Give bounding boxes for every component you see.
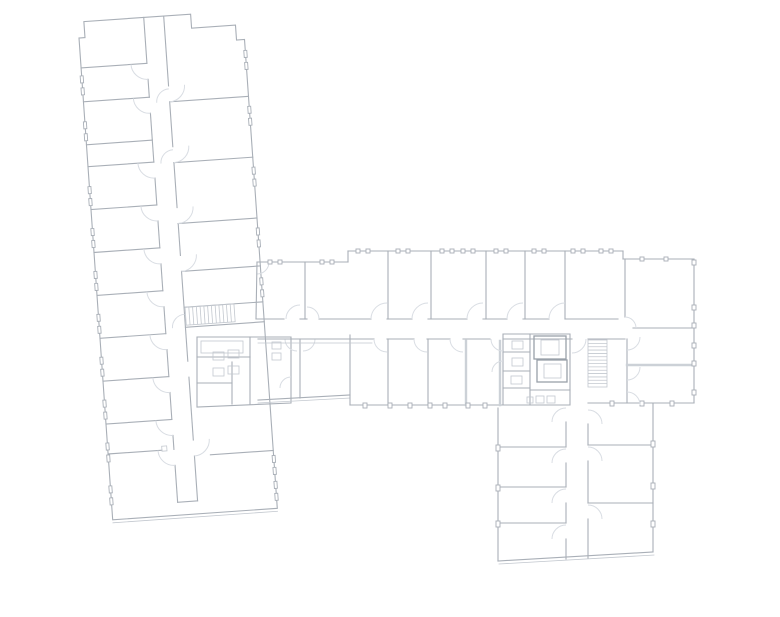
fixture [536, 396, 544, 403]
wall-wall-line [155, 178, 157, 205]
door-arc [627, 367, 640, 380]
window-mark [104, 412, 107, 419]
wall-wall-line [158, 221, 160, 248]
window-mark [330, 260, 334, 264]
wall-wall-line [210, 450, 273, 454]
door-arc [627, 337, 640, 350]
window-mark [692, 361, 696, 366]
window-mark [98, 326, 101, 333]
door-arc [169, 85, 186, 102]
window-mark [532, 249, 536, 253]
window-mark [609, 249, 613, 253]
door-arc [141, 205, 158, 222]
window-mark [496, 521, 500, 527]
wall-wall-line [170, 102, 173, 147]
window-mark [92, 240, 95, 247]
window-mark [110, 498, 113, 505]
stair-tread [211, 305, 212, 323]
wall-wall-line [194, 456, 197, 501]
window-mark [581, 249, 585, 253]
door-arc [572, 339, 586, 353]
wall-wall-line [81, 63, 147, 68]
fixture [272, 353, 281, 360]
window-mark [100, 357, 103, 364]
wall-wall-line [108, 450, 162, 454]
window-mark [483, 403, 487, 408]
wall-wall-line [189, 377, 193, 440]
wall-wall-line [88, 162, 154, 167]
junction-core [197, 262, 350, 407]
window-mark [272, 455, 275, 462]
window-mark [428, 403, 432, 408]
door-arc [492, 361, 503, 372]
window-mark [356, 249, 360, 253]
door-arc [177, 206, 194, 223]
stair-tread [208, 306, 209, 324]
window-mark [640, 257, 644, 261]
wall-wall-line [100, 334, 166, 339]
wall-wall-line [178, 224, 180, 256]
stair-tread [200, 306, 201, 324]
door-arc [172, 314, 186, 328]
wall-wall-line [94, 248, 160, 253]
left-wing [76, 10, 279, 522]
window-mark [268, 260, 272, 264]
door-arc [552, 489, 566, 503]
elevator-car [544, 364, 561, 378]
fixture [547, 396, 555, 403]
door-arc [147, 291, 164, 308]
window-mark [103, 400, 106, 407]
window-mark [106, 443, 109, 450]
door-arc [286, 305, 300, 319]
door-arc [158, 449, 175, 466]
window-mark [450, 249, 454, 253]
window-mark [443, 403, 447, 408]
wall-wall-line [144, 17, 147, 63]
door-arc [156, 89, 170, 103]
window-mark [278, 260, 282, 264]
stair-tread [230, 304, 231, 322]
window-mark [95, 283, 98, 290]
window-mark [109, 486, 112, 493]
door-arc [160, 150, 174, 164]
wall-wall-line [178, 218, 257, 224]
floor-plan-page [0, 0, 780, 617]
window-mark [599, 249, 603, 253]
wall-wall-line [174, 163, 177, 208]
stair-tread [226, 304, 227, 322]
window-mark [692, 260, 696, 265]
window-mark [275, 493, 278, 500]
window-mark [396, 249, 400, 253]
window-mark [81, 88, 84, 95]
wall-wall-line [103, 377, 169, 382]
window-mark [260, 278, 263, 285]
wall-wall-line [170, 96, 249, 102]
window-mark [273, 467, 276, 474]
door-arc [153, 377, 170, 394]
wall-wall-line [256, 262, 257, 319]
bottom-wing [496, 403, 655, 564]
window-mark [692, 323, 696, 328]
door-arc [156, 419, 173, 436]
wall-wall-line [182, 266, 261, 272]
window-mark [80, 76, 83, 83]
window-mark [692, 390, 696, 395]
wall-outline [197, 337, 291, 407]
window-mark [107, 455, 110, 462]
wall-wall-line [91, 205, 157, 210]
window-mark [84, 134, 87, 141]
door-arc [280, 377, 291, 388]
window-mark [466, 403, 470, 408]
door-arc [467, 303, 483, 319]
door-arc [412, 303, 428, 319]
door-arc [588, 410, 602, 424]
stair-tread [189, 307, 190, 325]
stair-tread [193, 307, 194, 325]
window-mark [249, 118, 252, 125]
elevator-box [537, 360, 567, 382]
door-arc [193, 439, 210, 456]
door-arc [588, 505, 602, 519]
door-arc [549, 303, 565, 319]
fixture [512, 358, 523, 366]
window-mark [101, 369, 104, 376]
door-arc [552, 449, 566, 463]
wall-wall-line [258, 395, 350, 400]
wall-wall-line [170, 393, 172, 420]
window-mark [88, 187, 91, 194]
window-mark [440, 249, 444, 253]
door-arc [507, 303, 523, 319]
window-mark [542, 249, 546, 253]
window-mark [664, 257, 668, 261]
window-mark [406, 249, 410, 253]
window-mark [274, 481, 277, 488]
door-arc [450, 339, 463, 352]
window-mark [91, 228, 94, 235]
wall-wall-line [182, 271, 188, 361]
window-mark [461, 249, 465, 253]
wall-wall-line [175, 465, 178, 502]
stair-tread [223, 305, 224, 323]
door-arc [150, 334, 167, 351]
window-mark [651, 483, 655, 489]
wall-wall-line [83, 97, 149, 102]
stair-tread [204, 306, 205, 324]
window-mark [388, 403, 392, 408]
stair-tread [196, 306, 197, 324]
window-mark [261, 290, 264, 297]
window-mark [640, 401, 644, 406]
door-arc [371, 303, 387, 319]
fixture [228, 366, 239, 374]
door-arc [173, 146, 190, 163]
elevator-car [541, 340, 559, 355]
window-mark [610, 401, 614, 406]
window-mark [89, 199, 92, 206]
stair-tread [219, 305, 220, 323]
fixture [511, 376, 522, 384]
wall-wall-line [178, 501, 198, 502]
thin-wall-line [113, 511, 278, 523]
wall-wall-line [86, 140, 152, 145]
floorplan-canvas [0, 0, 780, 617]
window-mark [97, 314, 100, 321]
wall-wall-line [148, 79, 149, 97]
wall-wall-line [174, 157, 253, 163]
door-arc [138, 162, 155, 179]
middle-wing [256, 249, 696, 408]
window-mark [256, 228, 259, 235]
door-arc [144, 248, 161, 265]
door-arc [133, 97, 150, 114]
window-mark [245, 62, 248, 69]
wall-wall-line [167, 350, 169, 377]
stair-tread [215, 305, 216, 323]
window-mark [692, 343, 696, 348]
window-mark [366, 249, 370, 253]
window-mark [692, 305, 696, 310]
door-arc [414, 339, 427, 352]
wall-wall-line [106, 419, 172, 424]
door-arc [303, 339, 315, 351]
door-arc [588, 447, 602, 461]
wall-wall-line [164, 307, 166, 334]
window-mark [651, 521, 655, 527]
wall-wall-line [97, 291, 163, 296]
window-mark [571, 249, 575, 253]
door-arc [307, 307, 319, 319]
window-mark [257, 240, 260, 247]
window-mark [408, 403, 412, 408]
window-mark [83, 122, 86, 129]
window-mark [252, 167, 255, 174]
window-mark [496, 485, 500, 491]
window-mark [651, 441, 655, 447]
door-arc [131, 63, 148, 80]
door-arc [552, 408, 566, 422]
door-arc [625, 317, 636, 328]
window-mark [504, 249, 508, 253]
window-mark [94, 271, 97, 278]
fixture [201, 341, 243, 353]
door-arc [374, 339, 387, 352]
window-mark [471, 249, 475, 253]
wall-wall-line [150, 113, 153, 162]
window-mark [320, 260, 324, 264]
window-mark [253, 179, 256, 186]
window-mark [670, 401, 674, 406]
wall-wall-line [164, 16, 169, 86]
door-arc [257, 262, 269, 274]
window-mark [244, 50, 247, 57]
wall-wall-line [173, 435, 174, 449]
window-mark [494, 249, 498, 253]
door-arc [552, 525, 566, 539]
window-mark [363, 403, 367, 408]
wall-wall-line [161, 264, 163, 291]
fixture [512, 341, 523, 349]
window-mark [248, 106, 251, 113]
door-arc [180, 254, 197, 271]
fixture [213, 368, 224, 376]
window-mark [496, 445, 500, 451]
